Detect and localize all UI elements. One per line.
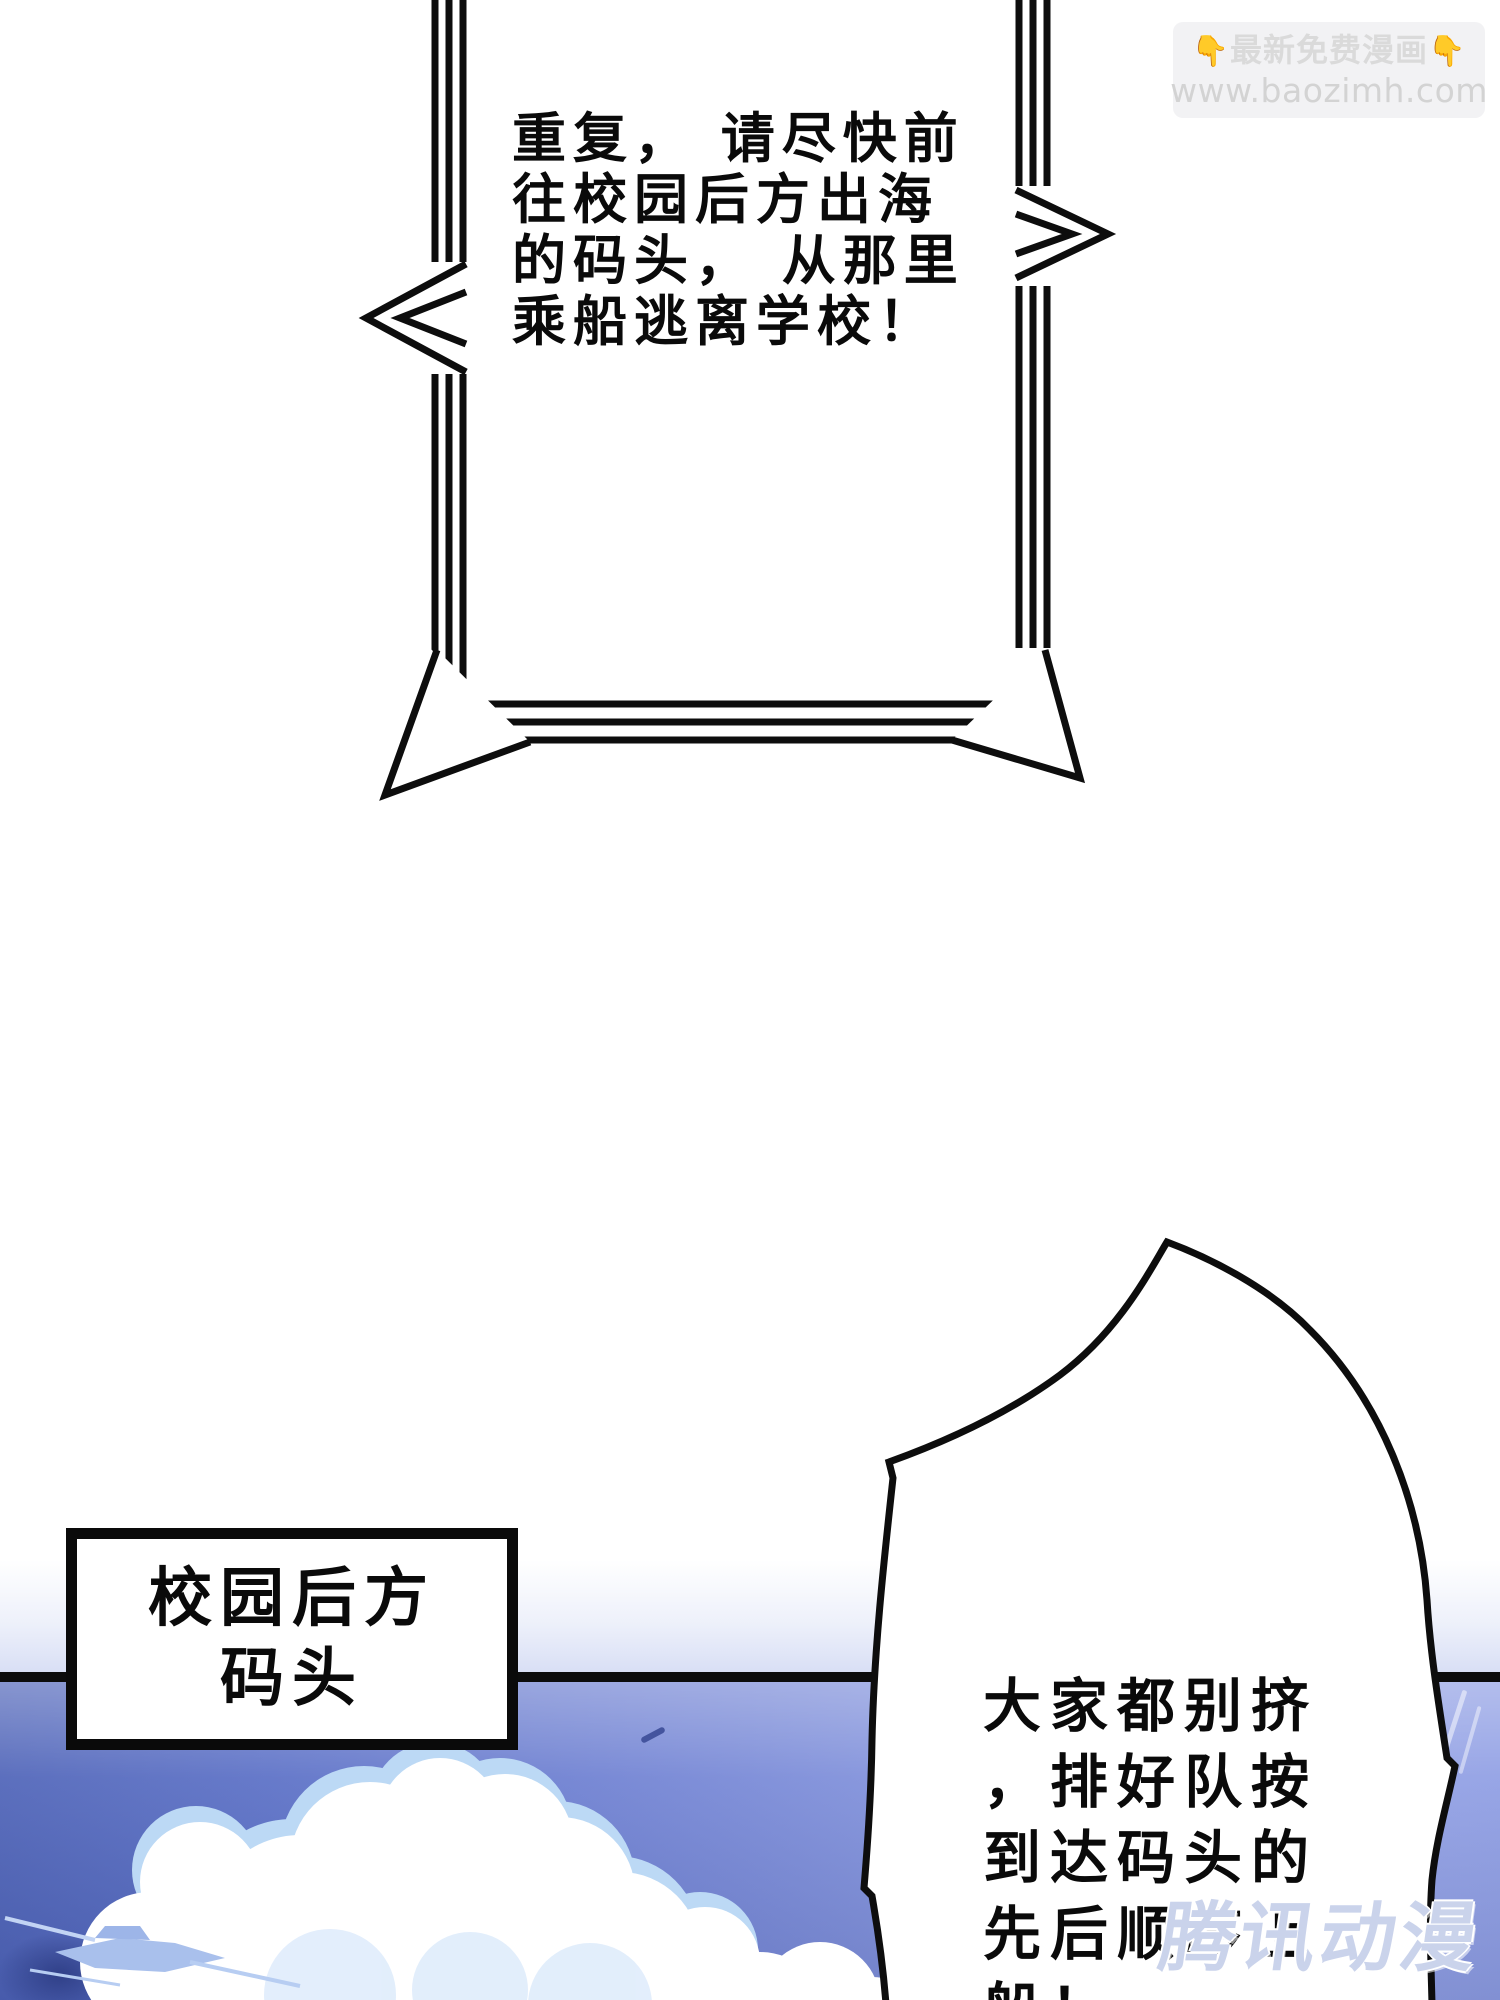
promo-line: 👇最新免费漫画👇 [1192, 30, 1467, 72]
pointer-down-icon: 👇 [1428, 34, 1466, 69]
comic-page: 重复， 请尽快前 往校园后方出海 的码头， 从那里 乘船逃离学校！ 校园后方 码… [0, 0, 1500, 2000]
site-url: www.baozimh.com [1170, 72, 1488, 110]
tencent-watermark: 腾讯动漫 [1155, 1900, 1486, 1976]
bubble-line: 大家都别挤 [983, 1668, 1318, 1744]
bubble-line: 到达码头的 [983, 1820, 1318, 1896]
promo-text: 最新免费漫画 [1230, 31, 1428, 69]
bubble-line: ，排好队按 [983, 1744, 1318, 1820]
pointer-down-icon: 👇 [1192, 34, 1230, 69]
promo-badge: 👇最新免费漫画👇 www.baozimh.com [1173, 22, 1485, 118]
